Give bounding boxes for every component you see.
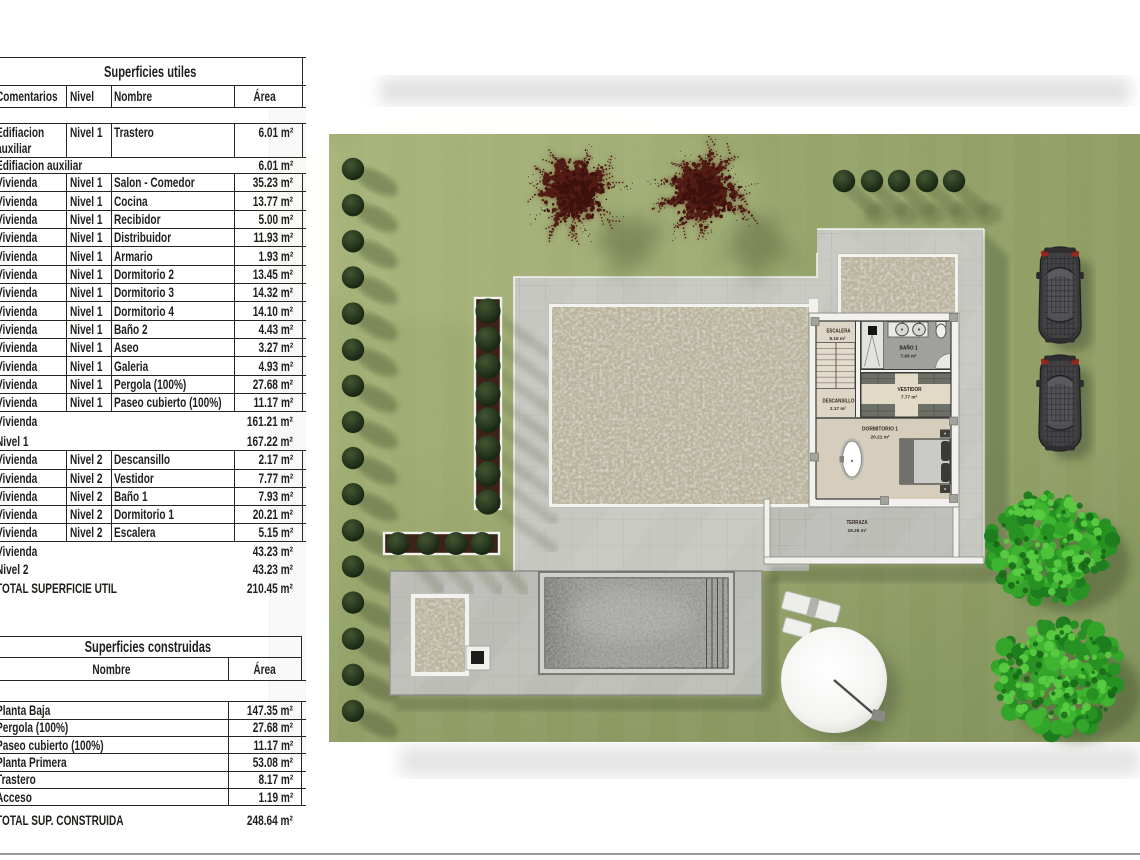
svg-text:ESCALERA: ESCALERA [827, 329, 851, 335]
svg-text:20.21 m²: 20.21 m² [871, 435, 890, 440]
svg-text:5.15 m²: 5.15 m² [830, 336, 846, 341]
svg-text:DESCANSILLO: DESCANSILLO [823, 399, 855, 405]
svg-text:2.17 m²: 2.17 m² [830, 406, 846, 411]
svg-text:DORMITORIO 1: DORMITORIO 1 [862, 427, 898, 433]
svg-text:19.25 m²: 19.25 m² [848, 528, 867, 533]
svg-text:7.93 m²: 7.93 m² [901, 354, 917, 359]
svg-text:VESTIDOR: VESTIDOR [898, 387, 922, 393]
svg-text:BAÑO 1: BAÑO 1 [900, 345, 918, 352]
svg-text:TERRAZA: TERRAZA [847, 520, 868, 526]
svg-text:7.77 m²: 7.77 m² [901, 395, 917, 400]
